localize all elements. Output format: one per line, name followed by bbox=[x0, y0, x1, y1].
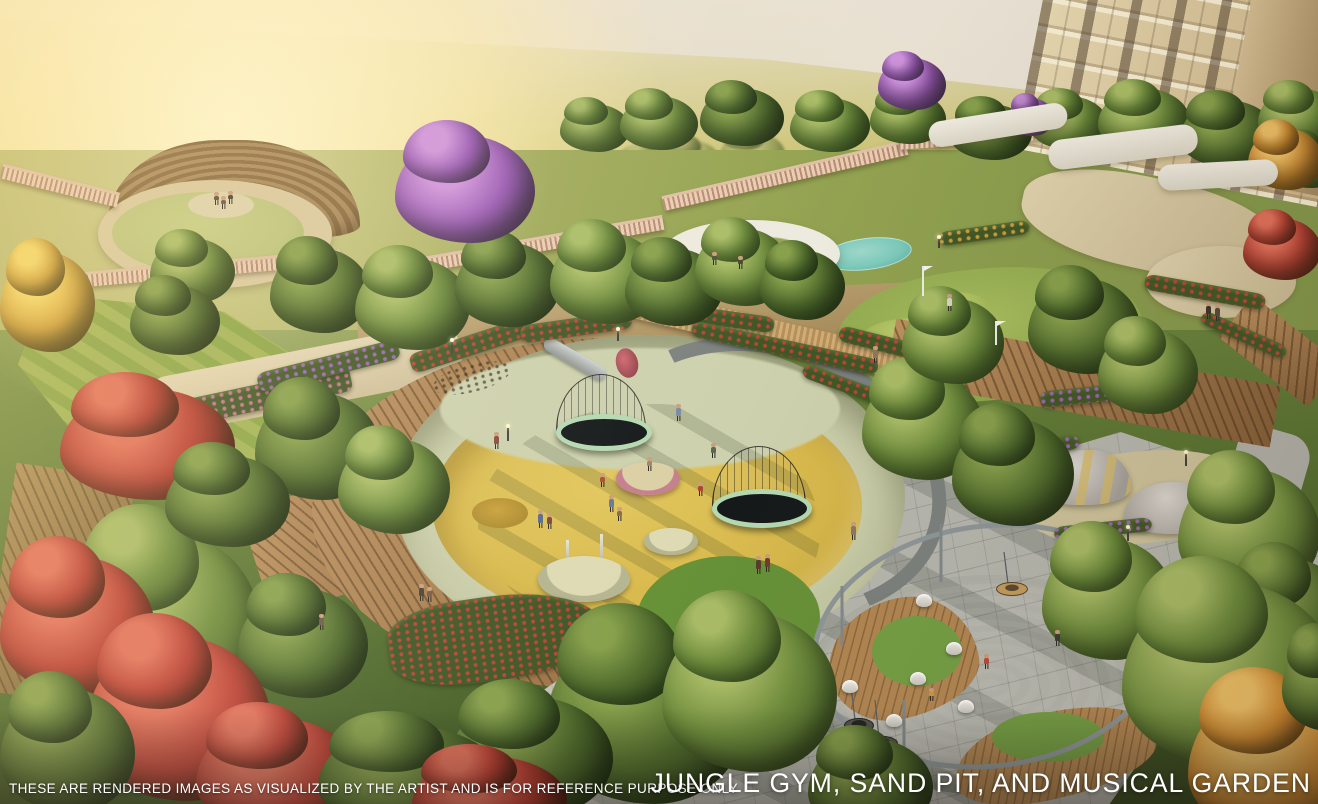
person bbox=[698, 486, 703, 491]
person bbox=[214, 196, 219, 200]
person bbox=[228, 195, 233, 199]
drum-stool bbox=[946, 642, 962, 655]
person bbox=[1055, 634, 1060, 641]
light-post bbox=[938, 238, 940, 248]
person bbox=[712, 256, 717, 260]
trampoline bbox=[556, 414, 652, 451]
light-post bbox=[1127, 528, 1129, 541]
tree bbox=[0, 252, 95, 352]
person bbox=[494, 436, 499, 444]
person bbox=[609, 499, 614, 507]
person bbox=[756, 560, 761, 569]
tree bbox=[952, 418, 1074, 526]
tree bbox=[270, 248, 370, 333]
person bbox=[547, 517, 552, 524]
person bbox=[538, 514, 543, 523]
light-post bbox=[451, 341, 453, 354]
light-post bbox=[507, 427, 509, 441]
tree bbox=[338, 438, 450, 534]
person bbox=[647, 461, 652, 466]
person bbox=[1206, 306, 1211, 314]
drum-stool bbox=[842, 680, 858, 693]
person bbox=[738, 260, 743, 264]
tree bbox=[902, 298, 1004, 384]
trampoline bbox=[712, 489, 812, 528]
drum-stool bbox=[916, 594, 932, 607]
tree bbox=[395, 135, 535, 243]
tree bbox=[662, 612, 837, 772]
tree bbox=[1098, 328, 1198, 414]
person bbox=[929, 692, 934, 696]
tree bbox=[355, 258, 470, 350]
person bbox=[427, 591, 432, 597]
saucer-swing bbox=[996, 582, 1028, 596]
golf-flag bbox=[995, 321, 997, 345]
light-post bbox=[1185, 453, 1187, 466]
image-title: JUNGLE GYM, SAND PIT, AND MUSICAL GARDEN bbox=[651, 768, 1311, 799]
rendered-park-scene: THESE ARE RENDERED IMAGES AS VISUALIZED … bbox=[0, 0, 1318, 804]
person bbox=[711, 447, 716, 453]
disclaimer-text: THESE ARE RENDERED IMAGES AS VISUALIZED … bbox=[9, 781, 738, 796]
tree bbox=[1243, 218, 1318, 280]
drum-stool bbox=[910, 672, 926, 685]
person bbox=[851, 526, 856, 535]
tree bbox=[455, 242, 560, 327]
person bbox=[984, 658, 989, 664]
person bbox=[947, 298, 952, 306]
tree bbox=[760, 250, 845, 320]
person bbox=[419, 588, 424, 596]
cream-platform-small bbox=[644, 528, 698, 555]
person bbox=[319, 618, 324, 625]
person bbox=[873, 350, 878, 358]
person bbox=[1215, 308, 1220, 316]
person bbox=[765, 558, 770, 567]
tree bbox=[165, 455, 290, 547]
person bbox=[600, 477, 605, 482]
light-post bbox=[617, 330, 619, 341]
person bbox=[617, 511, 622, 516]
person bbox=[221, 200, 226, 204]
person bbox=[676, 408, 681, 416]
drum-stool bbox=[886, 714, 902, 727]
golf-flag bbox=[922, 266, 924, 296]
tree bbox=[130, 285, 220, 355]
drum-stool bbox=[958, 700, 974, 713]
